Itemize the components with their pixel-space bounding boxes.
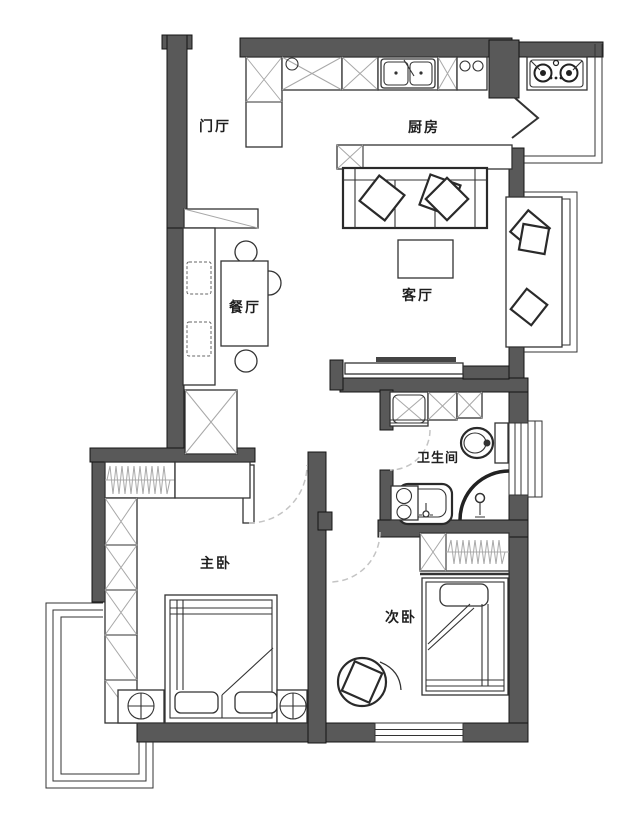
- room-label-dining: 餐厅: [228, 299, 261, 315]
- bathroom-window: [509, 421, 542, 497]
- wall-segment: [340, 378, 528, 392]
- room-label-living: 客厅: [401, 287, 434, 303]
- wall-segment: [463, 366, 509, 379]
- console-shelf: [184, 209, 258, 228]
- kitchen-sink: [381, 59, 435, 88]
- clothes-rail: [105, 462, 175, 498]
- second-bedroom-fixtures: [338, 533, 509, 706]
- wall-segment: [167, 228, 184, 455]
- storage-cabinet: [185, 390, 237, 454]
- floor-plan: 门厅 厨房 餐厅 客厅 卫生间 主卧 次卧: [0, 0, 640, 822]
- nightstand-left: [118, 690, 164, 723]
- shelf-cabinet: [175, 462, 250, 498]
- coffee-table: [398, 240, 453, 278]
- wall-segment: [509, 530, 528, 742]
- toilet: [461, 423, 508, 463]
- island-counter: [337, 145, 512, 169]
- room-label-kitchen: 厨房: [408, 119, 440, 135]
- cushion: [519, 224, 549, 254]
- fridge-cabinet: [246, 57, 282, 147]
- laundry-fixture: [391, 486, 418, 520]
- sofa: [343, 168, 487, 228]
- armchair: [338, 658, 401, 706]
- seat-cushion: [187, 262, 211, 294]
- wall-segment: [308, 452, 326, 743]
- bed-master: [165, 595, 277, 723]
- living-fixtures: [343, 168, 487, 374]
- room-label-master-bedroom: 主卧: [200, 555, 232, 571]
- nightstand-right: [277, 690, 307, 723]
- wall-segment: [330, 360, 343, 390]
- pillow: [235, 692, 277, 713]
- master-bedroom-fixtures: [105, 462, 307, 723]
- seat-cushion: [187, 322, 211, 356]
- folding-door: [512, 98, 538, 138]
- shower-enclosure: [460, 471, 509, 520]
- room-label-second-bedroom: 次卧: [385, 609, 417, 625]
- wall-segment: [505, 42, 603, 57]
- room-label-bathroom: 卫生间: [417, 450, 459, 465]
- pillow: [175, 692, 218, 713]
- kitchen-fixtures: [246, 57, 587, 169]
- bedroom-window: [375, 723, 463, 742]
- room-label-entry-hall: 门厅: [199, 118, 231, 134]
- tv: [376, 357, 456, 362]
- wall-segment: [167, 35, 187, 228]
- wall-segment: [137, 723, 528, 742]
- wardrobe-master: [105, 498, 137, 723]
- bed-second: [422, 578, 508, 695]
- door-swing: [249, 465, 307, 523]
- shower-head-icon: [476, 494, 485, 503]
- bathroom-cabinet: [428, 392, 482, 420]
- bay-window-living: [506, 192, 577, 352]
- second-bedroom-door-swing: [330, 532, 380, 582]
- wall-segment: [92, 462, 105, 602]
- entry-dining-fixtures: [183, 209, 281, 454]
- door-hinge-block: [318, 512, 332, 530]
- washing-machine: [390, 392, 428, 426]
- wall-segment: [489, 40, 519, 98]
- dining-chair: [235, 350, 257, 372]
- floor-plan-page: { "rooms": { "entry_hall": { "label": "门…: [0, 0, 640, 822]
- dining-chair: [235, 241, 257, 263]
- dining-bench: [183, 228, 215, 385]
- tv-console: [345, 357, 463, 374]
- wall-segment: [240, 38, 512, 57]
- gas-stove: [527, 57, 587, 90]
- pillow: [440, 584, 488, 606]
- wardrobe-second: [420, 533, 509, 574]
- master-bedroom-door: [243, 465, 307, 523]
